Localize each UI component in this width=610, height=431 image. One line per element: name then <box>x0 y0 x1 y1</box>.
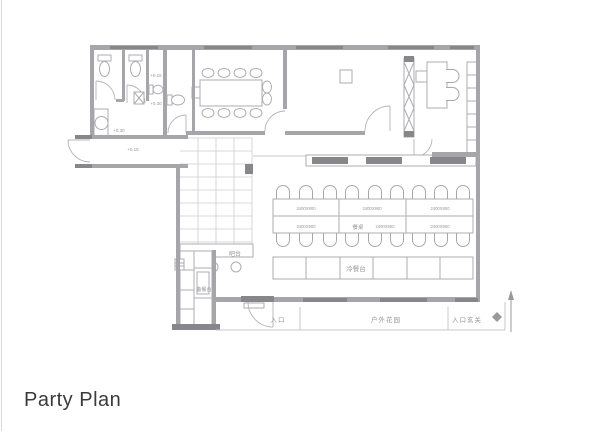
wall-stub <box>186 131 195 135</box>
floor-plan-page: +0.15 +0.30 +0.30 +0.15 吧台 备餐台 2400X900 … <box>0 0 610 431</box>
chair-icon <box>218 69 230 78</box>
wc-door-arc <box>168 115 186 133</box>
chair-icon <box>202 69 214 78</box>
level-label: +0.15 <box>150 73 162 78</box>
chair-icon <box>263 81 272 93</box>
cold-buffet-label: 冷餐台 <box>346 264 366 273</box>
dining-tables-group <box>273 186 473 247</box>
chair-icon <box>250 109 262 118</box>
bathroom-fixtures <box>94 55 186 136</box>
table-size-label: 2400X900 <box>296 224 316 229</box>
chair-icon <box>369 234 382 247</box>
door-arc <box>365 106 390 131</box>
wall-office-bottom <box>432 152 476 157</box>
chair-icon <box>202 109 214 118</box>
chair-icon <box>369 186 382 199</box>
dimension-arrow-icon <box>508 290 514 332</box>
chair-icon <box>234 109 246 118</box>
bar-stool <box>231 262 241 272</box>
chair-icon <box>457 186 470 199</box>
chair-icon <box>234 69 246 78</box>
entrance-step <box>241 296 274 302</box>
toilet-tank <box>149 85 153 94</box>
wall-meeting-right <box>283 49 287 109</box>
toilet-bowl <box>131 62 141 77</box>
wall-meeting-bottom <box>195 131 265 135</box>
toilet-bowl <box>172 95 185 105</box>
wall-left <box>90 45 94 138</box>
entrance-label: 入口 <box>271 316 286 324</box>
bar-counter-label: 吧台 <box>229 250 241 258</box>
cold-buffet-counter <box>273 257 473 279</box>
stall-door-arc <box>96 81 115 100</box>
prep-counter-label: 备餐台 <box>196 286 211 293</box>
table-size-label: 2400X900 <box>296 206 316 211</box>
chair-icon <box>277 234 290 247</box>
chair-icon <box>435 234 448 247</box>
table-size-label: 2400X900 <box>430 206 450 211</box>
wall-kitchen-right <box>212 250 216 330</box>
chair-icon <box>346 234 359 247</box>
level-label: +0.15 <box>127 147 139 152</box>
kitchen-bottom-wall <box>172 324 220 330</box>
wall-stall-right <box>146 49 149 101</box>
wall-wc-right <box>192 49 195 131</box>
floor-box <box>340 70 352 83</box>
entrance-foyer-label: 入口玄关 <box>452 315 482 324</box>
chair-icon <box>300 234 313 247</box>
wall-shelving <box>467 62 477 153</box>
desk-room-group <box>340 56 477 153</box>
table-size-label: 2400X900 <box>362 206 382 211</box>
chair-icon <box>457 234 470 247</box>
chair-icon <box>324 234 337 247</box>
bar-floor-grid <box>180 138 252 244</box>
level-label: +0.30 <box>150 101 162 106</box>
compass-diamond-icon <box>492 312 502 322</box>
chair-icon <box>391 186 404 199</box>
wall-right <box>476 45 480 302</box>
washbasin-icon <box>95 117 108 130</box>
level-label: +0.30 <box>113 128 125 133</box>
structural-pier-x-braced <box>404 56 414 137</box>
toilet-bowl <box>153 85 163 93</box>
wall-bath-thick <box>163 49 167 138</box>
chair-icon <box>300 186 313 199</box>
grid-dark-block <box>245 164 253 174</box>
toilet-tank <box>98 55 111 61</box>
dining-table-label: 餐桌 <box>352 223 364 231</box>
wall-stall-divider <box>122 49 125 101</box>
toilet-tank <box>129 55 142 61</box>
chair-icon <box>277 186 290 199</box>
chair-icon <box>446 88 459 101</box>
wall-hall-divider <box>285 131 365 135</box>
chair-icon <box>446 70 459 83</box>
plan-title: Party Plan <box>24 389 121 412</box>
table-size-label: 2400X900 <box>375 224 395 229</box>
wall-stub <box>116 99 124 102</box>
chair-icon <box>250 69 262 78</box>
meeting-table-group <box>192 69 272 118</box>
column-x-brace <box>134 92 144 104</box>
entrance-step <box>244 303 264 308</box>
table-size-label: 2400X900 <box>430 224 450 229</box>
desk <box>427 62 447 108</box>
toilet-bowl <box>100 62 110 77</box>
chair-icon <box>324 186 337 199</box>
outdoor-garden-label: 户外花园 <box>371 315 401 324</box>
chair-icon <box>218 109 230 118</box>
meeting-table <box>200 80 262 106</box>
chair-icon <box>263 93 272 105</box>
chair-icon <box>346 186 359 199</box>
entry-door-arc <box>68 140 90 162</box>
door-arc <box>265 111 285 131</box>
wall-lower-left <box>176 164 180 330</box>
floor-plan-drawing: +0.15 +0.30 +0.30 +0.15 吧台 备餐台 2400X900 … <box>0 0 610 431</box>
chair-icon <box>391 234 404 247</box>
chair-icon <box>413 234 426 247</box>
door-arc <box>414 139 432 157</box>
side-unit <box>416 71 427 82</box>
chair-icon <box>435 186 448 199</box>
chair-icon <box>413 186 426 199</box>
